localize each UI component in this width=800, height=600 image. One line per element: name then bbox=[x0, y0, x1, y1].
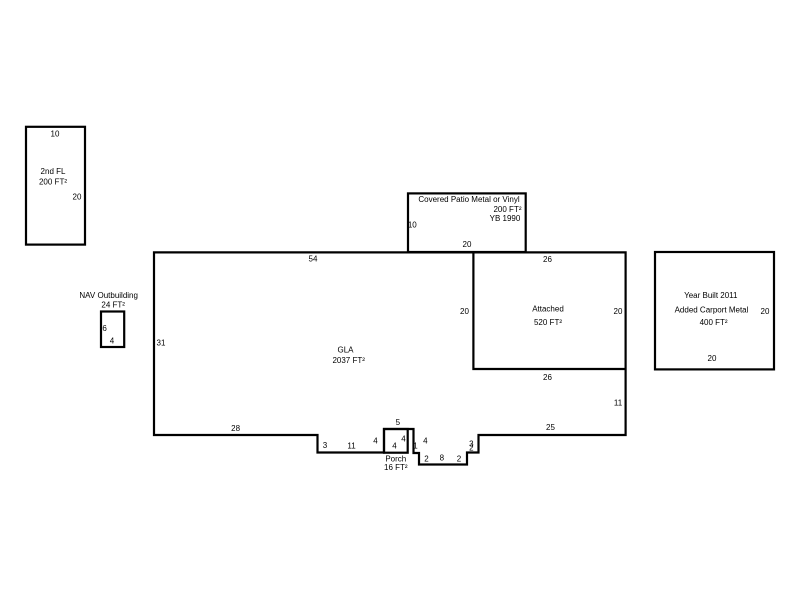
svg-text:31: 31 bbox=[157, 338, 166, 347]
svg-text:YB 1990: YB 1990 bbox=[490, 214, 521, 223]
svg-text:Added Carport Metal: Added Carport Metal bbox=[675, 306, 749, 315]
svg-text:28: 28 bbox=[231, 424, 240, 433]
svg-text:2: 2 bbox=[469, 443, 474, 452]
svg-text:20: 20 bbox=[761, 307, 770, 316]
svg-text:24 FT²: 24 FT² bbox=[101, 300, 125, 309]
svg-text:Year Built 2011: Year Built 2011 bbox=[684, 291, 738, 300]
svg-text:4: 4 bbox=[423, 437, 428, 446]
svg-text:Attached: Attached bbox=[532, 305, 564, 314]
svg-text:2: 2 bbox=[457, 454, 462, 463]
svg-text:3: 3 bbox=[323, 441, 328, 450]
svg-text:4: 4 bbox=[373, 436, 378, 445]
svg-text:4: 4 bbox=[401, 435, 406, 444]
svg-text:20: 20 bbox=[614, 307, 623, 316]
svg-text:2nd FL: 2nd FL bbox=[41, 167, 66, 176]
svg-text:2037 FT²: 2037 FT² bbox=[332, 356, 365, 365]
svg-text:11: 11 bbox=[347, 441, 356, 450]
svg-text:4: 4 bbox=[392, 442, 397, 451]
svg-text:20: 20 bbox=[460, 307, 469, 316]
svg-text:Porch: Porch bbox=[385, 454, 406, 463]
svg-text:1: 1 bbox=[413, 441, 418, 450]
svg-text:10: 10 bbox=[408, 221, 417, 230]
svg-text:200 FT²: 200 FT² bbox=[493, 205, 521, 214]
svg-text:NAV Outbuilding: NAV Outbuilding bbox=[79, 291, 138, 300]
svg-text:20: 20 bbox=[708, 354, 717, 363]
svg-text:16 FT²: 16 FT² bbox=[384, 463, 408, 472]
svg-text:20: 20 bbox=[463, 240, 472, 249]
svg-text:2: 2 bbox=[424, 454, 429, 463]
svg-text:54: 54 bbox=[309, 255, 318, 264]
svg-text:25: 25 bbox=[546, 423, 555, 432]
svg-text:20: 20 bbox=[73, 192, 82, 201]
svg-text:5: 5 bbox=[396, 418, 401, 427]
svg-text:6: 6 bbox=[102, 324, 107, 333]
svg-text:400 FT²: 400 FT² bbox=[700, 318, 728, 327]
svg-text:10: 10 bbox=[51, 130, 60, 139]
svg-text:11: 11 bbox=[614, 398, 623, 407]
svg-text:26: 26 bbox=[543, 255, 552, 264]
svg-text:8: 8 bbox=[440, 454, 445, 463]
svg-text:Covered Patio Metal or Vinyl: Covered Patio Metal or Vinyl bbox=[418, 195, 519, 204]
svg-text:GLA: GLA bbox=[337, 346, 354, 355]
svg-text:4: 4 bbox=[110, 336, 115, 345]
svg-text:200 FT²: 200 FT² bbox=[39, 177, 67, 186]
svg-text:520 FT²: 520 FT² bbox=[534, 318, 562, 327]
svg-text:26: 26 bbox=[543, 373, 552, 382]
